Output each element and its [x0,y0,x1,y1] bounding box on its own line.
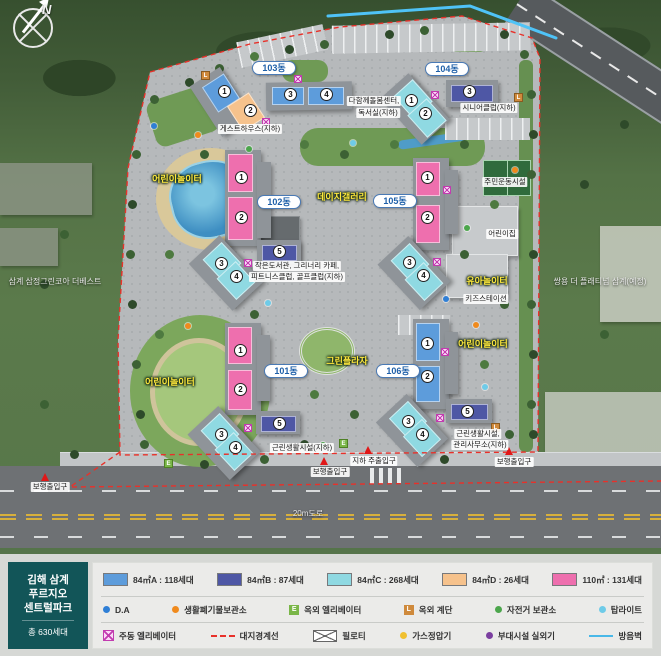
unit-number: 3 [463,85,476,98]
legend-label: 생활폐기물보관소 [184,604,247,616]
unit-number: 1 [405,94,418,107]
legend-waste-storage: 생활폐기물보관소 [172,604,247,616]
soundwall-icon [589,635,613,637]
entrance-marker [41,473,49,481]
project-title-box: 김해 삼계 푸르지오 센트럴파크 총 630세대 [8,562,88,649]
main-elevator-icon [443,186,451,194]
label-library-1: 작은도서관, 그리너리 카페, [253,261,341,271]
legend-outdoor-elevator: E 옥외 엘리베이터 [289,604,361,616]
unit-number: 2 [234,383,247,396]
unit-number: 4 [417,269,430,282]
legend-soundwall: 방음벽 [589,630,641,642]
unit-number: 1 [421,171,434,184]
label-care-center-1: 다함께돌봄센터, [347,96,401,106]
legend-label: 옥외 계단 [419,604,453,616]
label-sports-facility: 주민운동시설 [482,177,527,187]
unit-number: 2 [421,211,434,224]
legend-label: D.A [115,605,130,615]
parking-strip [332,22,530,53]
unit-number: 4 [230,270,243,283]
legend-outdoor-stair: L 옥외 계단 [404,604,453,616]
legend-label: 부대시설 실외기 [498,630,555,642]
label-pedestrian-entrance: 보행출입구 [495,457,534,467]
main-elevator-icon [103,630,114,641]
legend-unit-type-84c: 84㎡C : 268세대 [327,573,418,586]
legend-label: 주동 엘리베이터 [119,630,176,642]
label-senior-club: 시니어클럽(지하) [460,103,517,113]
unit-number: 2 [421,370,434,383]
main-elevator-icon [244,259,252,267]
legend-bicycle-storage: 자전거 보관소 [495,604,556,616]
bicycle-storage-icon [495,606,502,613]
legend-label: 자전거 보관소 [507,604,556,616]
swatch-84a [103,573,128,586]
main-elevator-icon [431,91,439,99]
unit-number: 2 [419,107,432,120]
main-elevator-icon [436,414,444,422]
swatch-84c [327,573,352,586]
parking-strip [445,118,530,140]
toplight-icon [350,140,356,146]
divider [22,620,74,621]
waste-storage-icon [185,323,191,329]
building-label-106: 106동 [376,364,420,378]
building-label-105: 105동 [373,194,417,208]
legend-label: 옥외 엘리베이터 [304,604,361,616]
label-road: 20m도로 [293,508,323,519]
entrance-marker [364,446,372,454]
neighbor-building [600,226,661,322]
label-neighbor-left: 삼계 삼정그린코아 더베스트 [9,276,102,287]
label-retail2-1: 근린생활시설, [454,429,501,439]
legend-da: D.A [103,605,130,615]
main-elevator-icon [433,258,441,266]
legend-gas-regulator: 가스정압기 [400,630,451,642]
building-label-101: 101동 [264,364,308,378]
unit-number: 2 [235,211,248,224]
legend-unit-type-84b: 84㎡B : 87세대 [217,573,304,586]
legend-unit-type-110: 110㎡ : 131세대 [552,573,642,586]
entrance-marker [320,457,328,465]
da-icon [103,606,110,613]
label-kids-station: 키즈스테이션 [463,294,508,304]
outdoor-elevator-icon: E [164,459,173,468]
label-retail: 근린생활시설(지하) [270,443,334,453]
legend-outdoor-unit: 부대시설 실외기 [486,630,555,642]
unit-number: 1 [218,85,231,98]
label-daisy-gallery: 데이지갤러리 [317,190,367,203]
legend-label: 방음벽 [618,630,641,642]
label-library-2: 피트니스클럽, 골프클럽(지하) [249,272,345,282]
label-kids-playground: 어린이놀이터 [152,172,202,185]
da-icon [151,123,157,129]
label-kids-playground: 어린이놀이터 [145,375,195,388]
outdoor-stair-icon: L [404,605,414,615]
toplight-icon [482,384,488,390]
swatch-84b [217,573,242,586]
label-underground-entrance: 지하 주출입구 [350,456,397,466]
legend-toplight: 탑라이트 [599,604,642,616]
unit-number: 3 [215,257,228,270]
outdoor-stair-icon: L [514,93,523,102]
legend-label: 가스정압기 [412,630,451,642]
legend-row-unit-types: 84㎡A : 118세대 84㎡B : 87세대 84㎡C : 268세대 84… [93,563,652,596]
label-care-center-2: 독서실(지하) [356,108,400,118]
waste-storage-icon [195,132,201,138]
toplight-icon [265,300,271,306]
legend-label: 탑라이트 [611,604,642,616]
unit-number: 3 [284,88,297,101]
project-name-line1: 김해 삼계 [27,574,69,587]
legend-main-elevator: 주동 엘리베이터 [103,630,176,642]
neighbor-building [0,163,92,215]
bicycle-storage-icon [246,146,252,152]
label-daycare: 어린이집 [486,229,518,239]
road-20m [0,466,661,548]
unit-number: 1 [421,337,434,350]
label-guesthouse: 게스트하우스(지하) [218,124,282,134]
outdoor-elevator-icon: E [339,439,348,448]
unit-number: 5 [273,245,286,258]
label-toddler-playground: 유아놀이터 [466,274,507,287]
unit-number: 4 [320,88,333,101]
label-retail2-2: 관리사무소(지하) [451,440,508,450]
unit-number: 1 [234,344,247,357]
swatch-84d [442,573,467,586]
unit-number: 4 [416,428,429,441]
label-pedestrian-entrance: 보행출입구 [311,467,350,477]
unit-number: 5 [273,417,286,430]
project-name-line2: 푸르지오 [29,588,68,601]
bicycle-storage-icon [464,225,470,231]
legend-label: 84㎡C : 268세대 [357,574,418,586]
legend-label: 110㎡ : 131세대 [582,574,642,586]
label-kids-playground: 어린이놀이터 [458,337,508,350]
toplight-icon [599,606,606,613]
project-name-line3: 센트럴파크 [24,602,72,615]
legend-label: 대지경계선 [240,630,279,642]
waste-storage-icon [172,606,179,613]
swatch-110 [552,573,577,586]
legend-items-panel: 84㎡A : 118세대 84㎡B : 87세대 84㎡C : 268세대 84… [92,562,653,649]
neighbor-building [0,228,58,266]
site-plan-map: 1 2 3 4 103동 1 2 3 104동 [0,0,661,554]
unit-number: 1 [235,171,248,184]
legend-unit-type-84a: 84㎡A : 118세대 [103,573,194,586]
da-icon [443,296,449,302]
unit-number: 4 [229,441,242,454]
outdoor-unit-icon [486,632,493,639]
waste-storage-icon [473,322,479,328]
unit-number: 2 [244,104,257,117]
legend-row-symbols-2: 주동 엘리베이터 대지경계선 필로티 가스정압기 부대시설 실외기 [93,623,652,648]
legend-label: 84㎡D : 26세대 [472,574,529,586]
unit-number: 3 [402,415,415,428]
label-green-plaza: 그린플라자 [326,354,367,367]
label-pedestrian-entrance: 보행출입구 [31,482,70,492]
main-elevator-icon [441,348,449,356]
unit-number: 3 [215,428,228,441]
waste-storage-icon [512,167,518,173]
outdoor-stair-icon: L [201,71,210,80]
building-label-102: 102동 [257,195,301,209]
main-elevator-icon [244,424,252,432]
legend-row-symbols-1: D.A 생활폐기물보관소 E 옥외 엘리베이터 L 옥외 계단 자전거 보관소 [93,597,652,622]
piloti-icon [313,630,337,642]
site-boundary-icon [211,635,235,637]
legend-label: 필로티 [342,630,365,642]
unit-number: 3 [403,256,416,269]
legend-piloti: 필로티 [313,630,365,642]
total-households: 총 630세대 [28,626,68,638]
main-elevator-icon [294,75,302,83]
building-label-103: 103동 [252,61,296,75]
crosswalk [370,468,404,484]
legend-unit-type-84d: 84㎡D : 26세대 [442,573,529,586]
legend-label: 84㎡B : 87세대 [247,574,304,586]
unit-number: 5 [461,405,474,418]
site-plan-page: 1 2 3 4 103동 1 2 3 104동 [0,0,661,656]
legend-label: 84㎡A : 118세대 [133,574,194,586]
building-label-104: 104동 [425,62,469,76]
compass-north-label: N [42,2,51,17]
label-neighbor-right: 쌍용 더 플래티넘 삼계(예정) [554,276,647,287]
outdoor-elevator-icon: E [289,605,299,615]
legend-site-boundary: 대지경계선 [211,630,279,642]
legend-panel: 김해 삼계 푸르지오 센트럴파크 총 630세대 84㎡A : 118세대 84… [0,554,661,656]
gas-regulator-icon [400,632,407,639]
